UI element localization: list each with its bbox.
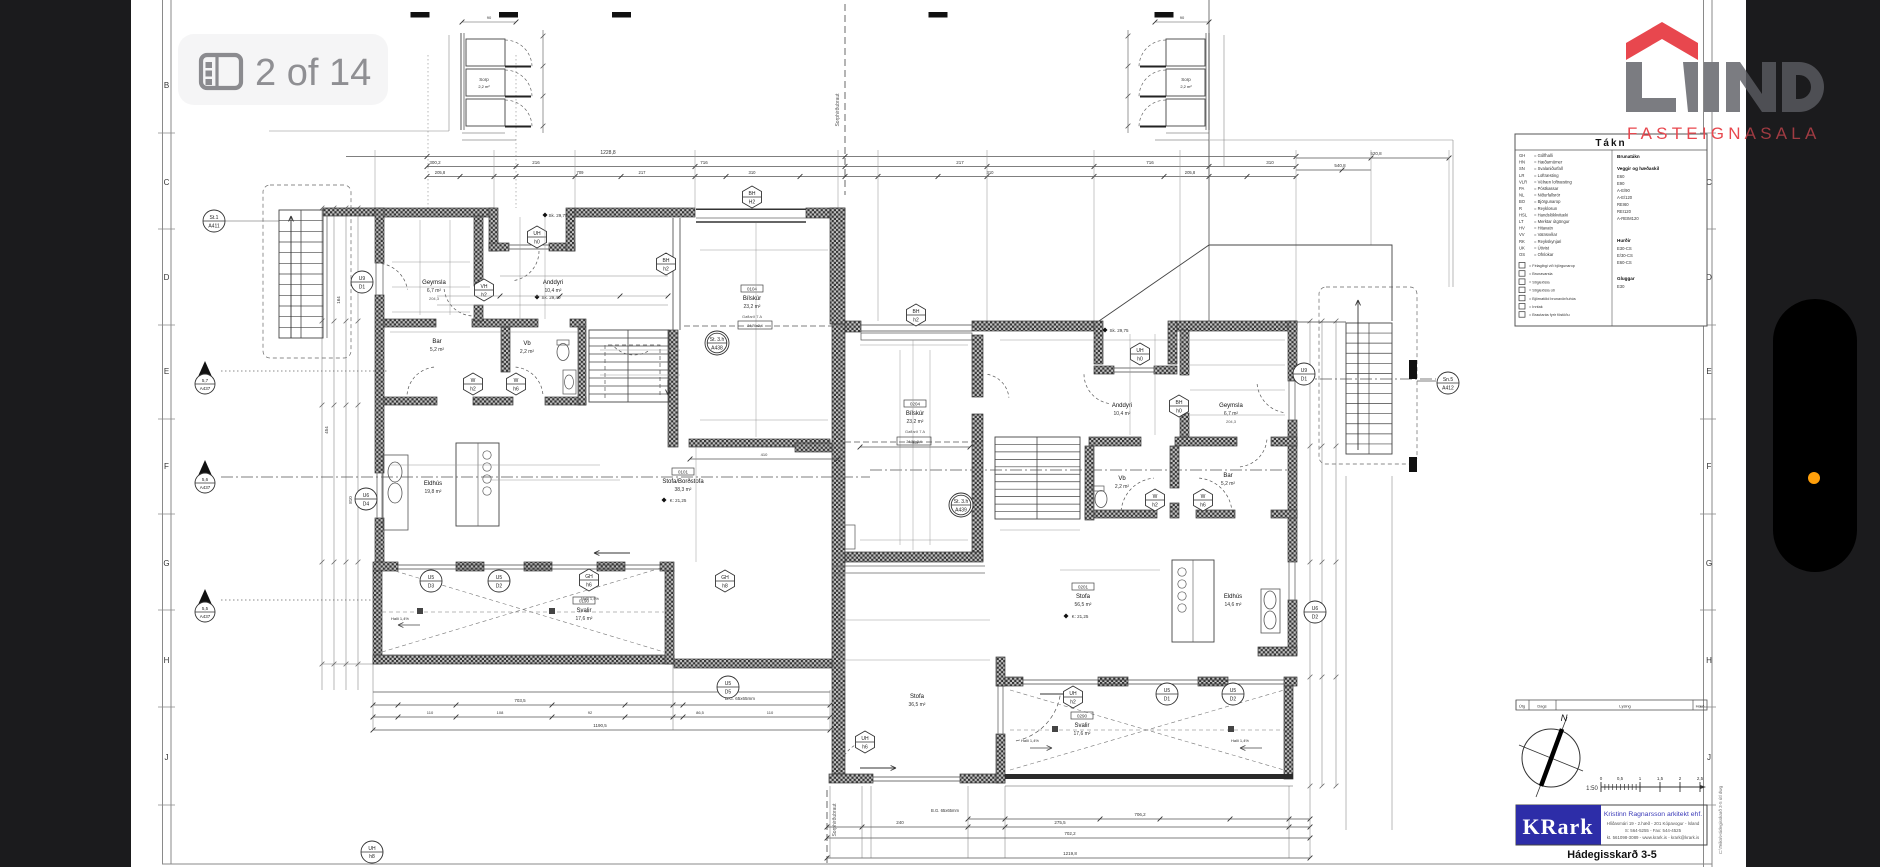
- svg-text:U9: U9: [359, 276, 366, 282]
- svg-text:Hádegisskarð 3-5: Hádegisskarð 3-5: [1567, 849, 1656, 861]
- svg-text:= Loftræsting: = Loftræsting: [1534, 173, 1559, 178]
- svg-text:Geymsla: Geymsla: [1219, 403, 1243, 409]
- svg-text:A437: A437: [200, 614, 211, 619]
- svg-text:2,5: 2,5: [1697, 776, 1704, 781]
- svg-text:Anddyri: Anddyri: [543, 280, 563, 286]
- svg-text:Halli 1,4%: Halli 1,4%: [391, 616, 409, 621]
- svg-text:Sorp: Sorp: [1181, 77, 1191, 82]
- svg-text:0190: 0190: [579, 599, 590, 604]
- svg-text:24,76x2,4: 24,76x2,4: [906, 440, 921, 444]
- svg-text:h0: h0: [534, 240, 540, 246]
- svg-text:E: E: [164, 367, 169, 376]
- svg-text:F: F: [164, 462, 169, 471]
- svg-text:204,3: 204,3: [429, 296, 440, 301]
- svg-text:kt. 561098-3089 - www.krark.is: kt. 561098-3089 - www.krark.is - krark@k…: [1607, 835, 1700, 840]
- svg-text:h6: h6: [586, 583, 592, 589]
- svg-text:204,3: 204,3: [1226, 419, 1237, 424]
- svg-text:Lýsing: Lýsing: [1619, 704, 1631, 709]
- svg-text:1219,8: 1219,8: [1063, 851, 1077, 856]
- svg-text:UH: UH: [368, 846, 376, 852]
- svg-text:= Svalaniðurfall: = Svalaniðurfall: [1534, 166, 1563, 171]
- svg-text:Sorphirðubraut: Sorphirðubraut: [831, 803, 838, 837]
- svg-text:Gaflarð 7 A: Gaflarð 7 A: [905, 429, 925, 434]
- svg-text:Bílskúr: Bílskúr: [743, 296, 761, 302]
- svg-text:D1: D1: [1164, 697, 1171, 703]
- svg-text:F: F: [1707, 462, 1712, 471]
- svg-text:A411: A411: [208, 224, 220, 230]
- svg-text:Halli 1,4%: Halli 1,4%: [1021, 738, 1039, 743]
- svg-text:454: 454: [324, 426, 329, 434]
- svg-text:6,7 m²: 6,7 m²: [1224, 411, 1239, 417]
- svg-text:RK: RK: [1519, 239, 1525, 244]
- svg-text:U6: U6: [363, 493, 370, 499]
- svg-text:D5: D5: [725, 690, 732, 696]
- svg-text:310: 310: [987, 170, 995, 175]
- svg-text:Dags: Dags: [1537, 704, 1546, 709]
- svg-text:BH: BH: [1176, 400, 1183, 406]
- svg-text:J: J: [1707, 753, 1711, 762]
- svg-text:= Ofnlokar: = Ofnlokar: [1534, 252, 1554, 257]
- svg-text:= Reykskynjari: = Reykskynjari: [1534, 239, 1561, 244]
- svg-text:LT: LT: [1519, 219, 1524, 224]
- svg-text:56,5 m²: 56,5 m²: [1075, 602, 1092, 608]
- svg-text:UH: UH: [861, 736, 869, 742]
- svg-text:= Gólfhalli: = Gólfhalli: [1534, 153, 1553, 158]
- svg-text:OS: OS: [1519, 252, 1525, 257]
- svg-text:810: 810: [348, 496, 353, 504]
- svg-text:E: E: [1706, 367, 1711, 376]
- svg-text:108: 108: [497, 710, 504, 715]
- svg-text:1:50: 1:50: [1586, 786, 1598, 792]
- svg-text:Bar: Bar: [1223, 473, 1232, 479]
- svg-text:BH: BH: [913, 309, 920, 315]
- svg-text:E30-CS: E30-CS: [1617, 246, 1632, 251]
- svg-text:Bar: Bar: [432, 339, 441, 345]
- svg-text:240: 240: [896, 820, 904, 825]
- svg-text:J: J: [165, 753, 169, 762]
- svg-text:= Stigleiðsla: = Stigleiðsla: [1529, 279, 1550, 284]
- svg-text:5,2 m²: 5,2 m²: [430, 347, 445, 353]
- svg-text:10,4 m²: 10,4 m²: [545, 288, 562, 294]
- svg-text:D4: D4: [363, 502, 370, 508]
- svg-text:Tákn: Tákn: [1595, 138, 1626, 149]
- svg-text:= Brunavarsla: = Brunavarsla: [1529, 272, 1553, 276]
- svg-text:Sk. 29,75: Sk. 29,75: [1109, 328, 1129, 333]
- svg-text:KRark: KRark: [1523, 814, 1594, 839]
- svg-text:C:\Teikn\Hádegisskarð 3-5 útl: C:\Teikn\Hádegisskarð 3-5 útl dwg: [1717, 785, 1723, 854]
- svg-text:GH: GH: [1519, 153, 1525, 158]
- svg-text:110: 110: [767, 710, 774, 715]
- svg-text:38,3 m²: 38,3 m²: [675, 487, 692, 493]
- svg-text:Sn.5: Sn.5: [1443, 377, 1454, 383]
- svg-text:h2: h2: [1070, 700, 1076, 706]
- svg-text:K: 21,25: K: 21,25: [670, 498, 687, 503]
- svg-text:164: 164: [336, 296, 341, 304]
- svg-text:0101: 0101: [678, 470, 689, 475]
- svg-text:= Handslökkvitæki: = Handslökkvitæki: [1534, 212, 1568, 217]
- svg-text:217: 217: [639, 170, 647, 175]
- svg-text:Hurðir: Hurðir: [1617, 237, 1631, 243]
- svg-text:410: 410: [761, 452, 768, 457]
- svg-text:= Björgunarop: = Björgunarop: [1534, 199, 1561, 204]
- svg-text:Veggir og hæðaskil: Veggir og hæðaskil: [1617, 165, 1659, 171]
- svg-text:h8: h8: [722, 584, 728, 590]
- svg-text:216: 216: [532, 160, 540, 165]
- svg-text:Sorphirðubraut: Sorphirðubraut: [834, 93, 841, 127]
- svg-text:GH: GH: [721, 575, 729, 581]
- svg-text:= Póstkassar: = Póstkassar: [1534, 186, 1559, 191]
- svg-text:= Niðurfallsrör: = Niðurfallsrör: [1534, 193, 1561, 198]
- svg-text:E90: E90: [1617, 181, 1625, 186]
- svg-text:Geymsla: Geymsla: [422, 280, 446, 286]
- svg-text:5,5: 5,5: [202, 606, 209, 611]
- svg-text:B: B: [164, 81, 169, 90]
- svg-text:A-REIM120: A-REIM120: [1617, 216, 1639, 221]
- svg-text:U5: U5: [428, 575, 435, 581]
- svg-text:h6: h6: [513, 387, 519, 393]
- svg-text:= Útivist: = Útivist: [1534, 245, 1550, 250]
- svg-text:E60-CS: E60-CS: [1617, 260, 1632, 265]
- svg-text:= Brautarás fyrir föstöðu: = Brautarás fyrir föstöðu: [1529, 312, 1570, 317]
- svg-text:Gaflarð 7 A: Gaflarð 7 A: [742, 314, 762, 319]
- svg-text:23,2 m²: 23,2 m²: [907, 419, 924, 425]
- svg-text:540,8: 540,8: [1334, 163, 1346, 168]
- svg-text:U6: U6: [1312, 606, 1319, 612]
- svg-text:36,5 m²: 36,5 m²: [909, 702, 926, 708]
- svg-text:A-E/120: A-E/120: [1617, 195, 1633, 200]
- svg-text:Svalir: Svalir: [576, 608, 591, 614]
- svg-text:UK: UK: [1519, 245, 1525, 250]
- svg-text:14,6 m²: 14,6 m²: [1225, 602, 1242, 608]
- svg-text:90: 90: [487, 15, 492, 20]
- svg-text:A412: A412: [1442, 386, 1454, 392]
- svg-text:= Björnatöld brunavörðuhús: = Björnatöld brunavörðuhús: [1529, 296, 1576, 301]
- svg-text:REI120: REI120: [1617, 209, 1632, 214]
- svg-text:W: W: [514, 378, 519, 384]
- svg-text:UH: UH: [1136, 348, 1144, 354]
- svg-text:St.1: St.1: [210, 215, 219, 221]
- svg-text:H: H: [164, 656, 170, 665]
- svg-text:2,2 m²: 2,2 m²: [1180, 84, 1192, 89]
- svg-text:D1: D1: [1301, 377, 1308, 383]
- svg-text:86,5: 86,5: [696, 710, 705, 715]
- svg-text:G: G: [1706, 559, 1712, 568]
- svg-text:PA: PA: [1519, 186, 1524, 191]
- svg-text:17,6 m²: 17,6 m²: [1074, 731, 1091, 737]
- svg-text:GH: GH: [585, 574, 593, 580]
- svg-text:K: 21,25: K: 21,25: [1072, 614, 1089, 619]
- svg-text:Eldhús: Eldhús: [424, 481, 442, 487]
- svg-text:D: D: [164, 273, 170, 282]
- svg-text:R: R: [1519, 206, 1522, 211]
- svg-text:U5: U5: [1164, 688, 1171, 694]
- svg-text:0204: 0204: [910, 402, 921, 407]
- svg-text:Sorp: Sorp: [479, 77, 489, 82]
- svg-text:A437: A437: [200, 485, 211, 490]
- svg-text:BH: BH: [749, 191, 756, 197]
- svg-text:300,2: 300,2: [429, 160, 441, 165]
- svg-text:23,2 m²: 23,2 m²: [744, 304, 761, 310]
- svg-text:716: 716: [700, 160, 708, 165]
- svg-text:LR: LR: [1519, 173, 1524, 178]
- svg-text:h0: h0: [1176, 409, 1182, 415]
- svg-text:5,6: 5,6: [202, 477, 209, 482]
- svg-text:W: W: [1201, 494, 1206, 500]
- svg-text:Vb: Vb: [1118, 476, 1126, 482]
- svg-text:6,7 m²: 6,7 m²: [427, 288, 442, 294]
- svg-text:1,5: 1,5: [1657, 776, 1664, 781]
- svg-text:VV: VV: [1519, 232, 1525, 237]
- svg-text:Svalir: Svalir: [1074, 723, 1089, 729]
- svg-text:709: 709: [577, 170, 585, 175]
- svg-text:VH: VH: [481, 284, 488, 290]
- svg-text:Hæð: Hæð: [1696, 704, 1705, 709]
- svg-text:D2: D2: [1230, 697, 1237, 703]
- svg-text:= Hæðarnúmer: = Hæðarnúmer: [1534, 160, 1563, 165]
- svg-text:A437: A437: [200, 386, 211, 391]
- svg-text:5,7: 5,7: [202, 378, 209, 383]
- svg-text:h8: h8: [369, 854, 375, 860]
- svg-text:St. 3.h: St. 3.h: [954, 499, 969, 505]
- svg-text:Stofa: Stofa: [910, 694, 925, 700]
- svg-text:1228,8: 1228,8: [600, 150, 616, 156]
- svg-text:217: 217: [956, 160, 964, 165]
- svg-text:= Vatnsvélar: = Vatnsvélar: [1534, 232, 1558, 237]
- svg-text:h0: h0: [1137, 357, 1143, 363]
- svg-text:A438: A438: [711, 346, 723, 352]
- svg-text:SN: SN: [1519, 166, 1525, 171]
- svg-text:Hlíðasmári 19 - 2.hæð - 201 Kó: Hlíðasmári 19 - 2.hæð - 201 Kópavogur - …: [1607, 821, 1700, 826]
- svg-text:D2: D2: [496, 584, 503, 590]
- svg-text:HV: HV: [1519, 226, 1525, 231]
- svg-text:Kristinn Ragnarsson arkitekt e: Kristinn Ragnarsson arkitekt ehf.: [1604, 811, 1702, 818]
- svg-text:h2: h2: [663, 267, 669, 273]
- svg-text:520,8: 520,8: [1370, 151, 1382, 156]
- svg-text:Bílskúr: Bílskúr: [906, 411, 924, 417]
- svg-text:Anddyri: Anddyri: [1112, 403, 1132, 409]
- svg-text:E/30-CS: E/30-CS: [1617, 253, 1633, 258]
- svg-text:D1: D1: [359, 285, 366, 291]
- svg-text:5,2 m²: 5,2 m²: [1221, 481, 1236, 487]
- svg-text:U5: U5: [725, 681, 732, 687]
- svg-text:275,5: 275,5: [1054, 820, 1066, 825]
- svg-text:17,6 m²: 17,6 m²: [576, 616, 593, 622]
- svg-text:D3: D3: [428, 584, 435, 590]
- svg-text:10,4 m²: 10,4 m²: [1114, 411, 1131, 417]
- svg-text:W: W: [471, 378, 476, 384]
- svg-text:= Inntak: = Inntak: [1529, 305, 1543, 309]
- svg-text:1190,5: 1190,5: [593, 723, 607, 728]
- svg-text:h6: h6: [862, 745, 868, 751]
- svg-text:= Félagibgi við björgunarop: = Félagibgi við björgunarop: [1529, 263, 1575, 268]
- svg-text:B.G. 65x65mm: B.G. 65x65mm: [931, 808, 959, 813]
- svg-text:h2: h2: [1152, 503, 1158, 509]
- svg-text:Eldhús: Eldhús: [1224, 594, 1242, 600]
- svg-text:Vb: Vb: [523, 341, 531, 347]
- svg-text:N: N: [1561, 713, 1568, 724]
- svg-text:92: 92: [588, 710, 593, 715]
- svg-text:310: 310: [1266, 160, 1274, 165]
- svg-text:UH: UH: [533, 231, 541, 237]
- svg-text:St. 3.h: St. 3.h: [710, 337, 725, 343]
- svg-text:E30: E30: [1617, 284, 1625, 289]
- svg-text:2,2 m²: 2,2 m²: [1115, 484, 1130, 490]
- svg-text:H2: H2: [749, 200, 756, 206]
- svg-text:0290: 0290: [1077, 714, 1088, 719]
- svg-text:h2: h2: [470, 387, 476, 393]
- svg-text:U5: U5: [496, 575, 503, 581]
- svg-text:A439: A439: [955, 508, 967, 514]
- svg-text:G: G: [163, 559, 169, 568]
- svg-text:= Merktar útgöngur: = Merktar útgöngur: [1534, 219, 1570, 224]
- svg-text:110: 110: [427, 710, 434, 715]
- svg-text:310: 310: [749, 170, 757, 175]
- svg-text:19,8 m²: 19,8 m²: [425, 489, 442, 495]
- svg-text:716: 716: [1146, 160, 1154, 165]
- svg-text:E60: E60: [1617, 174, 1625, 179]
- svg-text:h2: h2: [481, 293, 487, 299]
- svg-text:24,76x2,4: 24,76x2,4: [747, 324, 762, 328]
- svg-text:C: C: [164, 178, 170, 187]
- svg-text:Stofa/Borðstofa: Stofa/Borðstofa: [662, 478, 704, 485]
- svg-text:NL: NL: [1519, 193, 1525, 198]
- svg-text:Halli 1,4%: Halli 1,4%: [1231, 738, 1249, 743]
- svg-text:S: 564-5255 - Fax: 544-4525: S: 564-5255 - Fax: 544-4525: [1625, 828, 1682, 833]
- svg-text:HN: HN: [1519, 160, 1525, 165]
- svg-text:Sk. 29,75: Sk. 29,75: [548, 213, 568, 218]
- svg-text:D2: D2: [1312, 615, 1319, 621]
- svg-text:U9: U9: [1301, 368, 1308, 374]
- svg-text:Gluggar: Gluggar: [1617, 276, 1635, 281]
- svg-text:A-E/90: A-E/90: [1617, 188, 1630, 193]
- svg-text:UH: UH: [1069, 691, 1077, 697]
- svg-text:2,2 m²: 2,2 m²: [478, 84, 490, 89]
- svg-text:VLR: VLR: [1519, 179, 1527, 184]
- svg-text:90: 90: [1180, 15, 1185, 20]
- svg-text:REI60: REI60: [1617, 202, 1629, 207]
- svg-text:205,8: 205,8: [1185, 170, 1196, 175]
- svg-text:h6: h6: [1200, 503, 1206, 509]
- svg-text:h2: h2: [913, 318, 919, 324]
- svg-text:BH: BH: [663, 258, 670, 264]
- svg-text:= Hitavatn: = Hitavatn: [1534, 226, 1554, 231]
- svg-text:HSL: HSL: [1519, 212, 1528, 217]
- svg-text:703,5: 703,5: [514, 698, 526, 703]
- svg-text:H: H: [1706, 656, 1712, 665]
- svg-text:Útg: Útg: [1519, 704, 1525, 709]
- svg-text:0,5: 0,5: [1617, 776, 1624, 781]
- svg-text:W: W: [1153, 494, 1158, 500]
- svg-text:= Vélræn loftræsting: = Vélræn loftræsting: [1534, 179, 1572, 184]
- svg-text:2,2 m²: 2,2 m²: [520, 349, 535, 355]
- svg-text:0201: 0201: [1078, 585, 1089, 590]
- svg-text:2 of 14: 2 of 14: [255, 52, 371, 94]
- svg-text:702,2: 702,2: [1064, 831, 1076, 836]
- svg-text:= Stigleiðsla úti: = Stigleiðsla úti: [1529, 288, 1555, 293]
- svg-text:BO: BO: [1519, 199, 1526, 204]
- svg-text:205,8: 205,8: [435, 170, 446, 175]
- svg-text:U5: U5: [1230, 688, 1237, 694]
- svg-text:Stofa: Stofa: [1076, 594, 1091, 600]
- svg-text:706,2: 706,2: [1134, 812, 1146, 817]
- svg-text:Brunatákn: Brunatákn: [1617, 154, 1640, 159]
- svg-text:= Reyklosun: = Reyklosun: [1534, 206, 1558, 211]
